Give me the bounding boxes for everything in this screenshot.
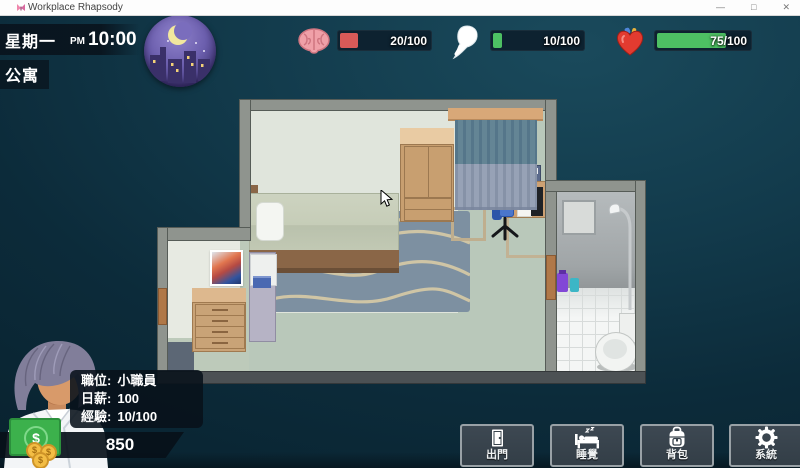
wall-right-main: [546, 100, 556, 383]
brain-icon: [296, 27, 332, 62]
window-title: Workplace Rhapsody: [28, 2, 123, 13]
location-label: 公寓: [0, 60, 49, 89]
day-label: 星期一: [5, 28, 56, 52]
gear-icon: [755, 427, 778, 449]
player-info-panel: 職位:小職員 日薪:100 經驗:10/100: [70, 370, 203, 428]
mood-bar: 75/100: [654, 30, 752, 51]
wall-top-annex: [158, 228, 250, 240]
wall-right-bathroom: [636, 181, 645, 383]
meridiem-label: PM: [70, 36, 85, 47]
position-row: 職位:小職員: [81, 373, 203, 389]
shelf-book: [253, 276, 271, 288]
curtain: [455, 120, 537, 164]
backpack-icon: [666, 427, 688, 449]
night-city-moon-icon: [144, 15, 216, 87]
energy-bar: 10/100: [490, 30, 585, 51]
experience-row: 經驗:10/100: [81, 409, 203, 425]
wall-left-main: [240, 100, 250, 240]
wardrobe[interactable]: [400, 128, 454, 222]
wage-row: 日薪:100: [81, 391, 203, 407]
sanity-value: 20/100: [390, 34, 427, 48]
mood-value: 75/100: [710, 34, 747, 48]
time-panel: 星期一 PM 10:00: [0, 24, 140, 55]
wall-poster: [210, 250, 243, 286]
bed-icon: [573, 427, 601, 449]
curtain-lower: [455, 164, 537, 210]
sleep-button[interactable]: 睡覺: [550, 424, 624, 467]
coin-icon: $: [32, 452, 49, 468]
mouse-cursor: [380, 190, 394, 208]
game-window: Workplace Rhapsody — □ ✕: [0, 0, 800, 468]
butterfly-icon: [16, 3, 26, 13]
money-amount: 850: [88, 435, 152, 455]
heart-icon: [613, 27, 647, 62]
close-button[interactable]: ✕: [782, 0, 790, 15]
energy-value: 10/100: [543, 34, 580, 48]
system-button[interactable]: 系統: [729, 424, 800, 467]
dresser[interactable]: [192, 288, 246, 352]
pillow: [256, 202, 284, 241]
sanity-bar: 20/100: [337, 30, 432, 51]
wall-top-bathroom: [546, 181, 645, 191]
spirit-icon: [450, 24, 484, 65]
backpack-button[interactable]: 背包: [640, 424, 714, 467]
bathroom-mirror-cabinet: [562, 200, 596, 235]
maximize-button[interactable]: □: [751, 0, 756, 15]
go-out-button[interactable]: 出門: [460, 424, 534, 467]
minimize-button[interactable]: —: [716, 0, 725, 15]
wall-bottom: [158, 372, 645, 383]
apartment-door[interactable]: [158, 288, 167, 325]
bathroom-door[interactable]: [546, 255, 556, 300]
door-icon: [486, 427, 508, 449]
shampoo-bottle: [557, 273, 568, 292]
soap-bottle: [570, 278, 579, 292]
title-bar: Workplace Rhapsody — □ ✕: [0, 0, 800, 16]
toilet[interactable]: [595, 332, 637, 372]
shower[interactable]: [606, 198, 636, 313]
floor-mat: [451, 207, 486, 241]
clock-label: 10:00: [88, 29, 137, 51]
